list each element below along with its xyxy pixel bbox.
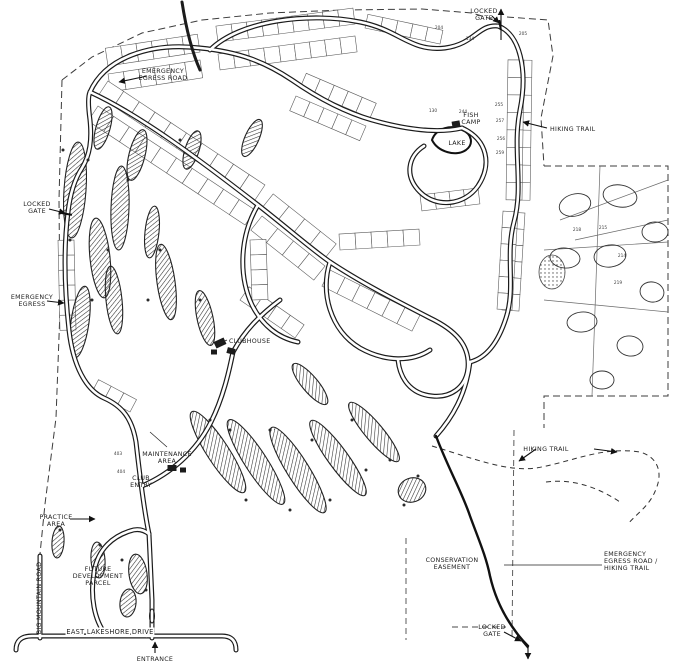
label-locked-gate-top: LOCKEDGATE bbox=[470, 8, 497, 22]
conservation-access-road bbox=[436, 436, 528, 646]
label-practice-area: PRACTICEAREA bbox=[40, 514, 73, 528]
locked-top-leader-arrow bbox=[492, 16, 499, 23]
lot-numbers: 2041342051302442552572562592182152142194… bbox=[114, 25, 626, 475]
lot-number: 204 bbox=[435, 25, 443, 31]
lot-number: 214 bbox=[618, 253, 626, 259]
lot-number: 404 bbox=[117, 469, 125, 475]
lot-number: 259 bbox=[496, 150, 504, 156]
hiking-center-right-arrow bbox=[594, 449, 617, 452]
lot-number: 218 bbox=[573, 227, 581, 233]
lot-parcel bbox=[307, 12, 324, 30]
lot-parcel bbox=[251, 254, 267, 270]
label-locked-gate-left: LOCKEDGATE bbox=[23, 201, 50, 215]
label-locked-gate-bottom: LOCKEDGATE bbox=[478, 624, 505, 638]
lot-parcel bbox=[279, 44, 296, 62]
lot-number: 244 bbox=[459, 109, 467, 115]
lot-number: 215 bbox=[599, 225, 607, 231]
lot-parcel bbox=[371, 231, 388, 248]
lot-parcel bbox=[403, 229, 420, 246]
lot-number: 403 bbox=[114, 451, 122, 457]
locked-left-arrow bbox=[49, 209, 65, 213]
label-hiking-trail-center: HIKING TRAIL bbox=[523, 446, 569, 453]
lot-number: 205 bbox=[519, 31, 527, 37]
lot-parcel bbox=[507, 147, 523, 165]
label-emergency-egress-left: EMERGENCYEGRESS bbox=[11, 294, 53, 308]
lot-parcel bbox=[309, 40, 326, 58]
lot-parcel bbox=[325, 38, 342, 56]
estate-lots-area bbox=[539, 166, 668, 396]
label-entrance: ENTRANCE bbox=[137, 656, 173, 663]
lot-parcel bbox=[410, 24, 428, 41]
lot-parcel bbox=[355, 232, 372, 249]
label-emergency-egress-hiking-trail: EMERGENCYEGRESS ROAD /HIKING TRAIL bbox=[604, 551, 658, 572]
label-club-entry: CLUBENTRY bbox=[130, 475, 152, 489]
lot-number: 256 bbox=[497, 136, 505, 142]
label-emergency-egress-road-top: EMERGENCYEGRESS ROAD bbox=[139, 68, 188, 82]
lot-number: 257 bbox=[496, 118, 504, 124]
lot-parcel bbox=[294, 42, 311, 60]
label-conservation-easement: CONSERVATIONEASEMENT bbox=[426, 557, 479, 571]
site-plan-map: LOCKEDGATEHIKING TRAILFISHCAMPLAKEEMERGE… bbox=[0, 0, 676, 666]
lot-parcel bbox=[252, 284, 268, 300]
label-hiking-trail-right: HIKING TRAIL bbox=[550, 126, 596, 133]
lot-number: 134 bbox=[466, 36, 474, 42]
lot-parcel bbox=[340, 36, 357, 54]
label-east-lakeshore-drive: EAST LAKESHORE DRIVE bbox=[66, 628, 153, 636]
label-future-development-parcel: FUTUREDEVELOPMENTPARCEL bbox=[73, 566, 123, 587]
label-clubhouse: CLUBHOUSE bbox=[229, 338, 271, 345]
lot-number: 219 bbox=[614, 280, 622, 286]
lot-parcel bbox=[387, 230, 404, 247]
lot-parcel bbox=[264, 46, 281, 64]
site-plan-page: LOCKEDGATEHIKING TRAILFISHCAMPLAKEEMERGE… bbox=[0, 0, 676, 666]
lot-number: 255 bbox=[495, 102, 503, 108]
lot-parcel bbox=[339, 233, 356, 250]
label-lake: LAKE bbox=[448, 140, 465, 147]
label-big-mountain-road: BIG MOUNTAIN ROAD bbox=[36, 562, 43, 634]
lot-parcel bbox=[250, 239, 266, 255]
lot-parcel bbox=[251, 269, 267, 285]
lot-number: 130 bbox=[429, 108, 437, 114]
